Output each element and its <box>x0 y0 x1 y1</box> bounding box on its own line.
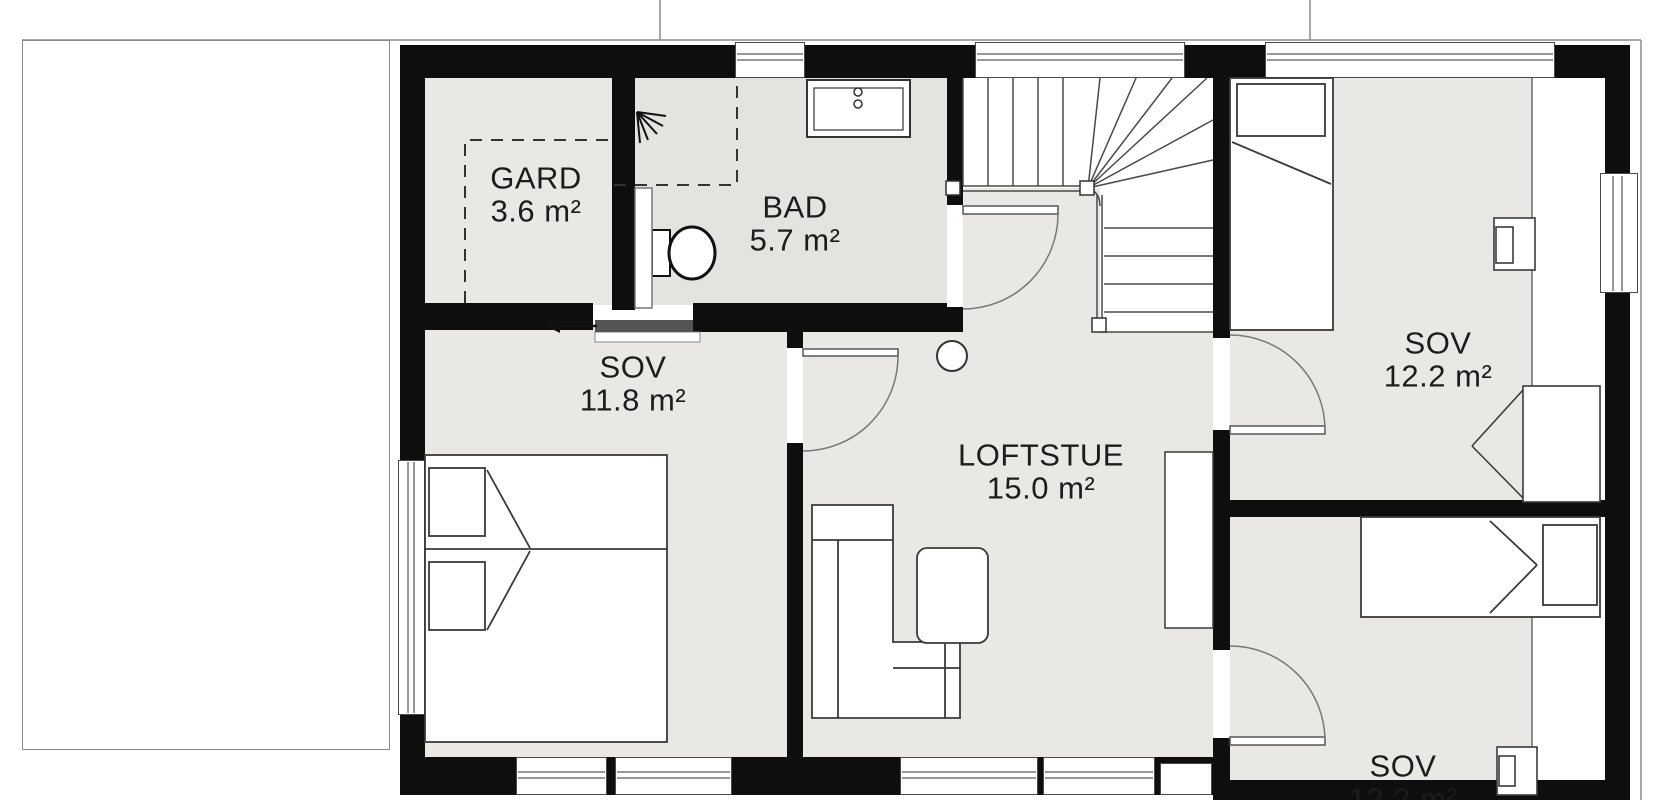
room-label-sov-lower-right: SOV <box>1370 751 1437 782</box>
single-bed-upper <box>1230 78 1333 330</box>
sliding-door <box>546 319 700 342</box>
coffee-table <box>917 548 988 643</box>
sink-icon <box>807 80 910 137</box>
shower-head-icon <box>637 112 666 143</box>
room-label-gard: GARD <box>490 163 582 194</box>
room-label-sov-left: SOV <box>600 352 667 383</box>
door-bad <box>963 206 1058 309</box>
slide-direction-arrow <box>546 319 560 333</box>
double-bed <box>425 455 667 742</box>
room-area-bad: 5.7 m² <box>750 225 841 256</box>
room-label-loftstue: LOFTSTUE <box>958 440 1124 471</box>
single-bed-lower <box>1361 517 1600 617</box>
toilet-icon <box>652 227 715 279</box>
staircase <box>946 78 1213 332</box>
door-sov-lower-right <box>1230 646 1325 745</box>
room-area-sov-upper-right: 12.2 m² <box>1384 361 1493 392</box>
room-area-gard: 3.6 m² <box>491 196 582 227</box>
wardrobe <box>1472 386 1600 502</box>
chimney-flue <box>937 341 967 371</box>
room-label-bad: BAD <box>762 192 827 223</box>
cabinet <box>1165 452 1213 628</box>
room-label-sov-upper-right: SOV <box>1405 328 1472 359</box>
floor-plan: GARD 3.6 m² BAD 5.7 m² SOV 11.8 m² LOFTS… <box>0 0 1670 800</box>
room-area-sov-left: 11.8 m² <box>580 385 686 416</box>
door-loftstue <box>803 349 898 451</box>
desk-lower <box>1497 747 1537 795</box>
plumbing-halfwall <box>635 188 652 308</box>
plan-detail-layer <box>0 0 1670 800</box>
room-area-loftstue: 15.0 m² <box>987 473 1096 504</box>
room-area-sov-lower-right: 12.2 m² <box>1349 784 1458 800</box>
desk-upper <box>1494 218 1535 270</box>
door-sov-upper-right <box>1230 335 1325 434</box>
